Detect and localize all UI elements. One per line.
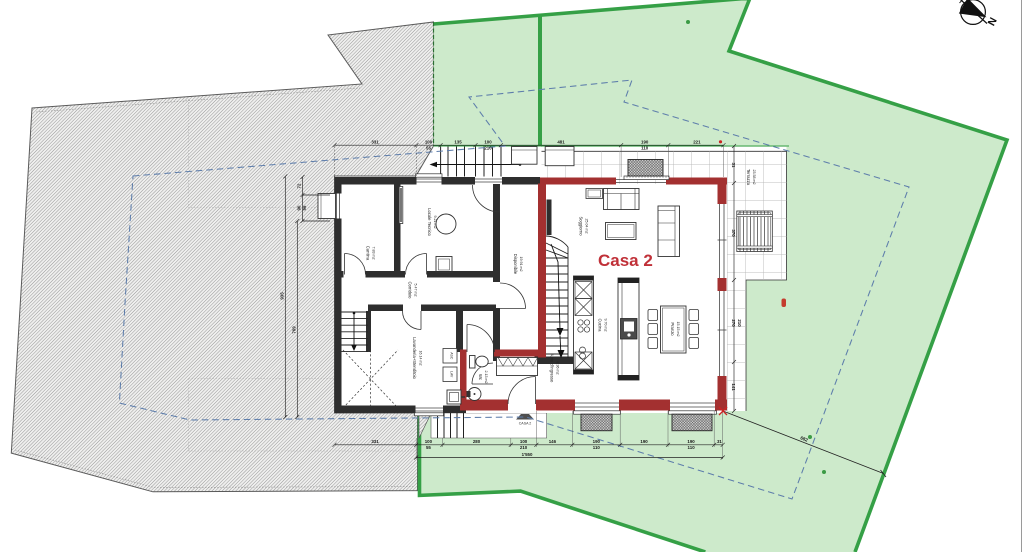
svg-text:100: 100	[484, 140, 492, 145]
svg-text:Cantina: Cantina	[366, 246, 371, 261]
svg-text:Disponibile: Disponibile	[513, 254, 518, 275]
svg-text:72: 72	[297, 183, 302, 188]
svg-text:221: 221	[693, 140, 701, 145]
svg-text:100: 100	[520, 439, 528, 444]
svg-text:8.36 m2: 8.36 m2	[556, 362, 560, 375]
svg-text:16.14 m2: 16.14 m2	[419, 351, 423, 366]
svg-text:31: 31	[731, 163, 736, 168]
svg-text:Pranzo: Pranzo	[670, 322, 675, 336]
svg-text:9.70 m2: 9.70 m2	[604, 319, 608, 332]
svg-text:Atrio d'ingresso: Atrio d'ingresso	[550, 354, 555, 383]
svg-text:331: 331	[371, 439, 379, 444]
svg-text:331: 331	[371, 140, 379, 145]
svg-text:Soggiorno: Soggiorno	[579, 216, 584, 236]
svg-text:100: 100	[425, 140, 433, 145]
svg-text:55: 55	[426, 445, 431, 450]
svg-text:110: 110	[641, 145, 649, 150]
svg-text:90: 90	[297, 205, 302, 210]
svg-text:Casa 2: Casa 2	[598, 251, 653, 270]
svg-text:Wc: Wc	[478, 374, 483, 380]
svg-text:190: 190	[640, 439, 648, 444]
svg-text:270: 270	[731, 319, 736, 327]
svg-text:110: 110	[593, 445, 601, 450]
svg-text:370: 370	[731, 229, 736, 237]
svg-text:481: 481	[557, 140, 565, 145]
svg-text:31: 31	[717, 439, 722, 444]
svg-text:5.47 m2: 5.47 m2	[414, 284, 418, 297]
svg-text:141: 141	[731, 383, 736, 391]
svg-text:769: 769	[291, 326, 296, 334]
svg-text:19.91 m2: 19.91 m2	[519, 257, 523, 272]
svg-text:Corridoio: Corridoio	[408, 282, 413, 300]
svg-text:15.15 m2: 15.15 m2	[676, 322, 680, 337]
svg-text:210: 210	[737, 319, 742, 327]
svg-text:280: 280	[473, 439, 481, 444]
svg-text:Cucina: Cucina	[598, 318, 603, 332]
svg-text:LAV: LAV	[450, 371, 454, 378]
svg-text:CASA 2: CASA 2	[519, 422, 532, 426]
svg-text:135: 135	[454, 140, 462, 145]
svg-text:55: 55	[426, 145, 431, 150]
svg-text:110: 110	[688, 445, 696, 450]
svg-text:1'550: 1'550	[522, 452, 533, 457]
svg-text:100: 100	[425, 439, 433, 444]
svg-text:190: 190	[593, 439, 601, 444]
svg-text:9.21 m2: 9.21 m2	[433, 216, 437, 229]
svg-text:190: 190	[687, 439, 695, 444]
svg-text:Locale Tecnico: Locale Tecnico	[427, 208, 432, 236]
svg-text:ASC: ASC	[450, 352, 454, 360]
svg-text:25.04 m2: 25.04 m2	[585, 219, 589, 234]
svg-text:7.83 m2: 7.83 m2	[372, 247, 376, 260]
svg-text:190: 190	[641, 140, 649, 145]
svg-text:935: 935	[279, 292, 284, 300]
svg-text:Lavanderia+Stenditoio: Lavanderia+Stenditoio	[412, 337, 417, 379]
svg-text:210: 210	[484, 145, 492, 150]
svg-text:2.13 m2: 2.13 m2	[484, 371, 488, 384]
svg-text:146: 146	[549, 439, 557, 444]
svg-text:Terrazza: Terrazza	[746, 169, 751, 186]
svg-text:23.58 m2: 23.58 m2	[752, 170, 756, 185]
svg-text:210: 210	[520, 445, 528, 450]
svg-text:96: 96	[302, 205, 307, 210]
